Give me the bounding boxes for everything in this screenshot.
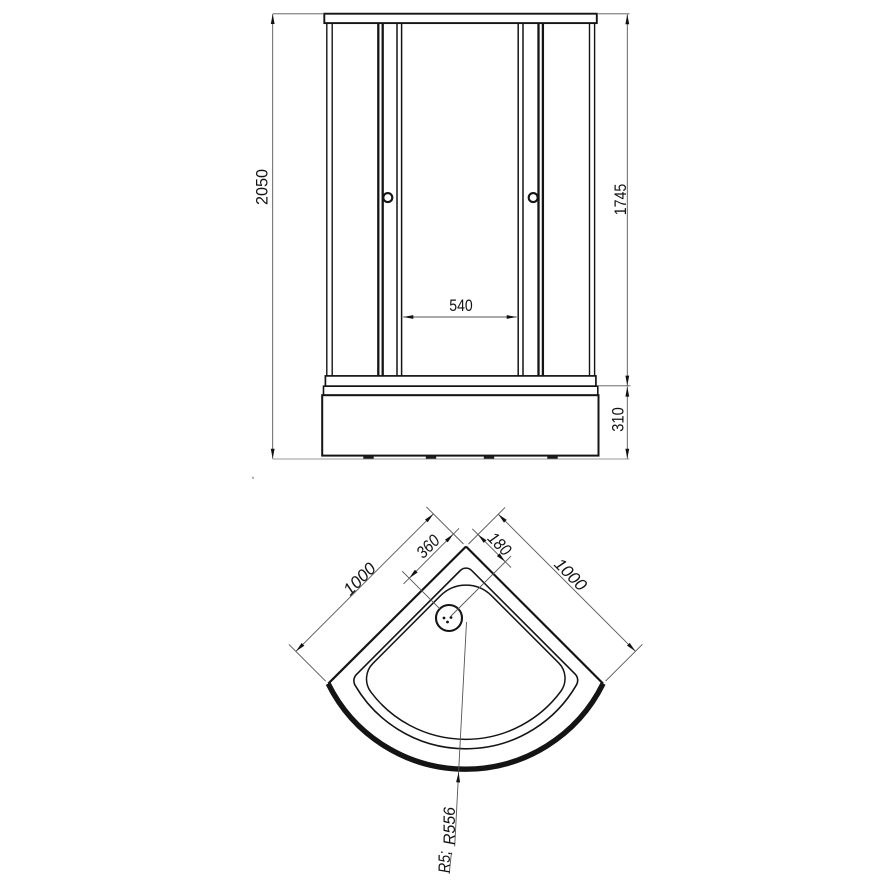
svg-text:360: 360 bbox=[413, 531, 444, 562]
svg-text:310: 310 bbox=[609, 407, 628, 432]
svg-text:540: 540 bbox=[449, 296, 473, 315]
svg-text:180: 180 bbox=[484, 529, 515, 560]
svg-text:2050: 2050 bbox=[253, 169, 272, 205]
svg-text:R556: R556 bbox=[440, 806, 459, 845]
svg-text:1000: 1000 bbox=[550, 554, 591, 595]
svg-text:R5;: R5; bbox=[435, 851, 454, 873]
svg-text:1745: 1745 bbox=[611, 184, 630, 216]
svg-text:1000: 1000 bbox=[339, 559, 380, 600]
